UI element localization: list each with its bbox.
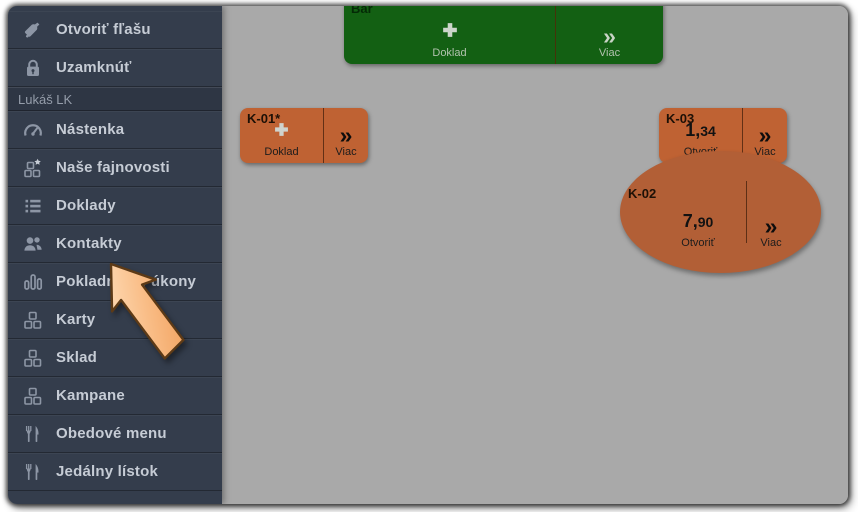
sidebar-item-label: Kampane [56,387,125,404]
more-label: Viac [599,47,620,59]
blocks-star-icon [21,158,45,178]
floor-plan-canvas: Bar Doklad » Viac K-01* Doklad [222,6,848,504]
more-button[interactable]: » Viac [555,6,663,64]
blocks-icon [21,348,45,368]
cutlery-icon [21,424,45,444]
lock-icon [21,58,45,78]
cutlery-icon [21,462,45,482]
sidebar-item-label: Naše fajnovosti [56,159,170,176]
more-label: Viac [760,237,781,249]
sidebar-item-contacts[interactable]: Kontakty [8,225,222,263]
sidebar-item-stock[interactable]: Sklad [8,339,222,377]
chevrons-icon: » [340,125,353,145]
blocks-icon [21,386,45,406]
open-label: Otvoriť [681,237,714,249]
blocks-icon [21,310,45,330]
open-amount: 7,90 [683,211,714,233]
user-name: Lukáš LK [18,92,72,107]
table-tile-bar[interactable]: Bar Doklad » Viac [344,6,663,64]
sidebar-item-label: Doklady [56,197,116,214]
sidebar-item-label: Sklad [56,349,97,366]
new-receipt-label: Doklad [264,146,298,158]
bottle-icon [21,20,45,40]
table-name: Bar [351,6,373,16]
sidebar-item-campaigns[interactable]: Kampane [8,377,222,415]
sidebar-item-label: Jedálny lístok [56,463,158,480]
table-tile-k02[interactable]: K-02 7,90 Otvoriť » Viac [620,151,821,273]
table-tile-k01[interactable]: K-01* Doklad » Viac [240,108,368,163]
open-receipt-button[interactable]: 7,90 Otvoriť [652,191,744,249]
sidebar-item-food-menu[interactable]: Jedálny lístok [8,453,222,491]
table-name: K-03 [666,111,694,126]
sidebar-item-label: Obedové menu [56,425,167,442]
sidebar-item-documents[interactable]: Doklady [8,187,222,225]
new-receipt-label: Doklad [432,47,466,59]
chevrons-icon: » [765,216,778,236]
chevrons-icon: » [759,125,772,145]
chevrons-icon: » [603,26,616,46]
list-icon [21,196,45,216]
sidebar-user: Lukáš LK [8,87,222,111]
table-name: K-01* [247,111,280,126]
sidebar-item-lock[interactable]: Uzamknúť [8,49,222,87]
plus-icon [442,22,458,43]
pos-app-window: Otvoriť fľašu Uzamknúť Lukáš LK Nástenka… [8,6,848,504]
new-receipt-button[interactable]: Doklad [344,6,555,64]
more-button[interactable]: » Viac [323,108,368,163]
sidebar: Otvoriť fľašu Uzamknúť Lukáš LK Nástenka… [8,6,222,504]
sidebar-item-cards[interactable]: Karty [8,301,222,339]
sidebar-item-label: Pokladničné úkony [56,273,196,290]
bar-chart-icon [21,272,45,292]
sidebar-item-register-operations[interactable]: Pokladničné úkony [8,263,222,301]
sidebar-item-label: Nástenka [56,121,124,138]
more-label: Viac [335,146,356,158]
sidebar-item-favorites[interactable]: Naše fajnovosti [8,149,222,187]
sidebar-item-label: Karty [56,311,95,328]
sidebar-item-label: Uzamknúť [56,59,131,76]
dashboard-gauge-icon [21,120,45,140]
sidebar-item-lunch-menu[interactable]: Obedové menu [8,415,222,453]
sidebar-item-dashboard[interactable]: Nástenka [8,111,222,149]
sidebar-item-label: Kontakty [56,235,122,252]
sidebar-item-open-bottle[interactable]: Otvoriť fľašu [8,11,222,49]
users-icon [21,234,45,254]
more-button[interactable]: » Viac [747,191,795,249]
sidebar-item-label: Otvoriť fľašu [56,21,151,38]
